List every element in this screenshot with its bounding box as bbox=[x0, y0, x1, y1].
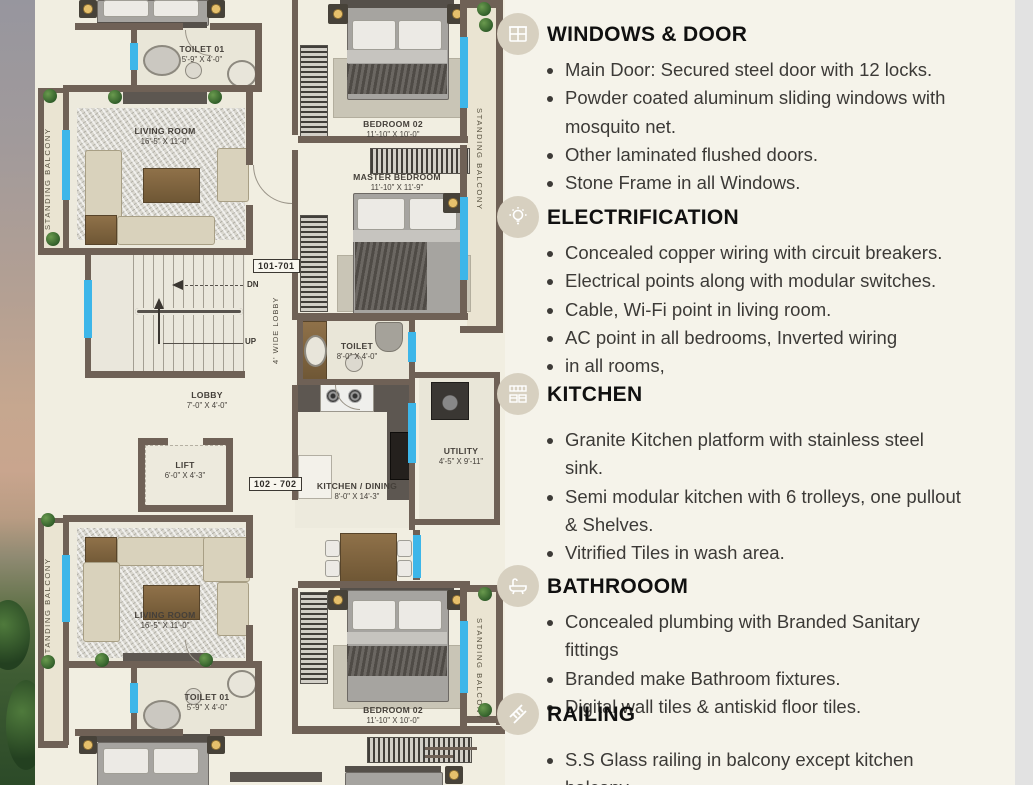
room-label-lobby: LOBBY 7'-0" X 4'-0" bbox=[172, 390, 242, 411]
headboard bbox=[340, 0, 454, 8]
wash-basin bbox=[304, 335, 327, 367]
wall bbox=[246, 85, 253, 165]
bullet-item: Other laminated flushed doors. bbox=[565, 141, 967, 169]
bullet-item: Semi modular kitchen with 6 trolleys, on… bbox=[565, 483, 967, 540]
window bbox=[460, 37, 468, 108]
bullet-list: Granite Kitchen platform with stainless … bbox=[505, 426, 967, 567]
wall bbox=[496, 0, 503, 333]
bedside-lamp bbox=[207, 736, 225, 754]
balcony-label: STANDING BALCONY bbox=[475, 108, 484, 220]
wall bbox=[246, 625, 253, 668]
arrow-left-icon bbox=[172, 280, 183, 290]
pillow bbox=[352, 600, 396, 630]
sofa bbox=[117, 537, 215, 566]
wall bbox=[210, 729, 262, 736]
room-label-bedroom02-bottom: BEDROOM 02 11'-10" X 10'-0" bbox=[357, 705, 429, 726]
arrow-up-icon bbox=[154, 298, 164, 309]
wall bbox=[292, 313, 468, 320]
pillow bbox=[153, 748, 199, 774]
pillow bbox=[103, 748, 149, 774]
plant bbox=[108, 90, 122, 104]
section-windows-door: WINDOWS & DOOR Main Door: Secured steel … bbox=[505, 16, 1005, 197]
room-label-master: MASTER BEDROOM 11'-10" X 11'-9" bbox=[352, 172, 442, 193]
window bbox=[62, 555, 70, 622]
unit-range-label: 101-701 bbox=[253, 259, 300, 273]
wall bbox=[292, 726, 505, 734]
wall bbox=[425, 755, 453, 758]
pillow bbox=[153, 0, 199, 17]
wall bbox=[255, 23, 262, 92]
wardrobe bbox=[300, 592, 328, 684]
stair-handrail bbox=[135, 308, 243, 315]
bedside-lamp bbox=[445, 766, 463, 784]
wall bbox=[138, 505, 233, 512]
section-electrification: ELECTRIFICATION Concealed copper wiring … bbox=[505, 199, 1005, 380]
coffee-table bbox=[143, 168, 200, 203]
plant bbox=[478, 587, 492, 601]
room-label-utility: UTILITY 4'-5" X 9'-11" bbox=[431, 446, 491, 467]
wardrobe bbox=[367, 737, 472, 763]
bedside-lamp bbox=[79, 736, 97, 754]
room-label-living-top: LIVING ROOM 16'-5" X 11'-0" bbox=[130, 126, 200, 147]
window-icon bbox=[497, 13, 539, 55]
background-photo bbox=[0, 0, 35, 785]
window bbox=[413, 535, 421, 578]
bullet-item: Granite Kitchen platform with stainless … bbox=[565, 426, 967, 483]
plant bbox=[208, 90, 222, 104]
room-label-bedroom02-top: BEDROOM 02 11'-10" X 10'-0" bbox=[357, 119, 429, 140]
tv-console bbox=[123, 92, 207, 104]
section-title: BATHROOOM bbox=[547, 575, 688, 599]
floor-plan: DN UP 101-701 102 - 702 4' WIDE LOBBY TO… bbox=[35, 0, 505, 785]
bedside-lamp bbox=[328, 4, 348, 24]
section-header: RAILING bbox=[505, 696, 1005, 734]
wall bbox=[75, 729, 183, 736]
bedside-lamp bbox=[328, 590, 348, 610]
bullet-item: Cable, Wi-Fi point in living room. bbox=[565, 296, 967, 324]
right-gray-strip bbox=[1015, 0, 1033, 785]
wall bbox=[63, 85, 262, 92]
window bbox=[460, 621, 468, 693]
section-title: RAILING bbox=[547, 703, 635, 727]
wall bbox=[292, 150, 298, 315]
room-label-toilet-mid: TOILET 8'-0" X 4'-0" bbox=[327, 341, 387, 362]
plant bbox=[43, 89, 57, 103]
wardrobe bbox=[300, 215, 328, 312]
bullet-item: Vitrified Tiles in wash area. bbox=[565, 539, 967, 567]
plant bbox=[478, 703, 492, 717]
wardrobe bbox=[370, 148, 470, 174]
stair-up-label: UP bbox=[245, 337, 256, 346]
stair-up-line bbox=[158, 308, 160, 344]
unit-range-label: 102 - 702 bbox=[249, 477, 302, 491]
bed-sheet bbox=[353, 230, 461, 242]
window bbox=[408, 332, 416, 362]
section-title: WINDOWS & DOOR bbox=[547, 23, 747, 47]
bullet-item: Electrical points along with modular swi… bbox=[565, 267, 967, 295]
bed-throw bbox=[347, 646, 447, 676]
pillow bbox=[357, 198, 405, 230]
wall bbox=[415, 372, 500, 378]
bed-sheet bbox=[347, 50, 447, 63]
window bbox=[130, 43, 138, 70]
bullet-list: Main Door: Secured steel door with 12 lo… bbox=[505, 56, 967, 197]
wall bbox=[297, 315, 303, 385]
plant bbox=[41, 513, 55, 527]
pillow bbox=[398, 20, 442, 50]
window bbox=[84, 280, 92, 338]
wall bbox=[292, 0, 298, 135]
armchair bbox=[217, 148, 249, 202]
pillow bbox=[398, 600, 442, 630]
room-label-toilet01-top: TOILET 01 5'-9" X 4'-0" bbox=[167, 44, 237, 65]
room-label-toilet01-bottom: TOILET 01 5'-9" X 4'-0" bbox=[172, 692, 242, 713]
sofa bbox=[203, 537, 250, 582]
chair bbox=[325, 540, 340, 557]
railing-icon bbox=[497, 693, 539, 735]
stair-dn-line bbox=[185, 285, 243, 286]
wall bbox=[63, 661, 262, 668]
chair bbox=[397, 540, 412, 557]
plant bbox=[46, 232, 60, 246]
bullet-item: Powder coated aluminum sliding windows w… bbox=[565, 84, 967, 141]
wall bbox=[63, 518, 69, 745]
door-swing bbox=[253, 165, 292, 204]
bullet-item: Main Door: Secured steel door with 12 lo… bbox=[565, 56, 967, 84]
lobby-width-label: 4' WIDE LOBBY bbox=[271, 296, 280, 364]
bed bbox=[345, 772, 443, 785]
wall bbox=[63, 515, 253, 522]
brochure-page: DN UP 101-701 102 - 702 4' WIDE LOBBY TO… bbox=[0, 0, 1033, 785]
room-label-kitchen: KITCHEN / DINING 8'-0" X 14'-3" bbox=[312, 481, 402, 502]
bed-throw bbox=[347, 64, 447, 94]
wall bbox=[246, 205, 253, 255]
section-header: ELECTRIFICATION bbox=[505, 199, 1005, 237]
wall bbox=[415, 519, 500, 525]
console bbox=[230, 772, 322, 782]
plant bbox=[199, 653, 213, 667]
bullet-item: Concealed plumbing with Branded Sanitary… bbox=[565, 608, 967, 665]
balcony-label: STANDING BALCONY bbox=[43, 118, 52, 230]
section-header: KITCHEN bbox=[505, 376, 1005, 414]
bullet-item: S.S Glass railing in balcony except kitc… bbox=[565, 746, 967, 785]
side-table bbox=[85, 215, 117, 245]
wall bbox=[298, 581, 470, 588]
wall bbox=[85, 371, 245, 378]
wall bbox=[63, 248, 253, 255]
section-header: WINDOWS & DOOR bbox=[505, 16, 1005, 54]
chair bbox=[397, 560, 412, 577]
wall bbox=[226, 438, 233, 512]
section-railing: RAILING S.S Glass railing in balcony exc… bbox=[505, 696, 1005, 785]
bullet-item: AC point in all bedrooms, Inverted wirin… bbox=[565, 324, 967, 352]
section-title: KITCHEN bbox=[547, 383, 642, 407]
plant bbox=[95, 653, 109, 667]
window bbox=[62, 130, 70, 200]
bullet-item: Stone Frame in all Windows. bbox=[565, 169, 967, 197]
room-label-lift: LIFT 6'-0" X 4'-3" bbox=[150, 460, 220, 481]
wall bbox=[292, 588, 298, 728]
chair bbox=[325, 560, 340, 577]
bathtub-icon bbox=[497, 565, 539, 607]
pillow bbox=[352, 20, 396, 50]
bullet-list: S.S Glass railing in balcony except kitc… bbox=[505, 746, 967, 785]
stair-dn-label: DN bbox=[247, 280, 259, 289]
wall bbox=[425, 747, 477, 750]
sofa bbox=[117, 216, 215, 245]
balcony-label: STANDING BALCONY bbox=[43, 548, 52, 660]
armchair bbox=[217, 582, 249, 636]
specifications-panel: WINDOWS & DOOR Main Door: Secured steel … bbox=[505, 0, 1015, 785]
section-kitchen: KITCHEN Granite Kitchen platform with st… bbox=[505, 376, 1005, 567]
bullet-item: Concealed copper wiring with circuit bre… bbox=[565, 239, 967, 267]
pillow bbox=[103, 0, 149, 17]
wall bbox=[75, 23, 183, 30]
washing-machine bbox=[431, 382, 469, 420]
wall bbox=[38, 741, 68, 748]
window bbox=[460, 197, 468, 280]
bedside-lamp bbox=[207, 0, 225, 18]
stair-up-line bbox=[163, 343, 243, 344]
wall bbox=[460, 326, 503, 333]
bedside-lamp bbox=[79, 0, 97, 18]
plant bbox=[41, 655, 55, 669]
plant bbox=[479, 18, 493, 32]
bullet-list: Concealed copper wiring with circuit bre… bbox=[505, 239, 967, 380]
kitchen-icon bbox=[497, 373, 539, 415]
bulb-icon bbox=[497, 196, 539, 238]
tree bbox=[0, 600, 30, 670]
window bbox=[130, 683, 138, 713]
section-title: ELECTRIFICATION bbox=[547, 206, 739, 230]
sofa bbox=[83, 562, 120, 642]
wall bbox=[255, 668, 262, 734]
room-label-living-bottom: LIVING ROOM 16'-5" X 11'-0" bbox=[130, 610, 200, 631]
dining-table bbox=[340, 533, 397, 582]
bed-throw bbox=[355, 242, 427, 310]
window bbox=[408, 403, 416, 463]
section-header: BATHROOOM bbox=[505, 568, 1005, 606]
bed-sheet bbox=[347, 632, 447, 644]
wardrobe bbox=[300, 45, 328, 142]
bullet-item: Branded make Bathroom fixtures. bbox=[565, 665, 967, 693]
plant bbox=[477, 2, 491, 16]
wall bbox=[246, 518, 253, 578]
wall bbox=[138, 438, 145, 512]
